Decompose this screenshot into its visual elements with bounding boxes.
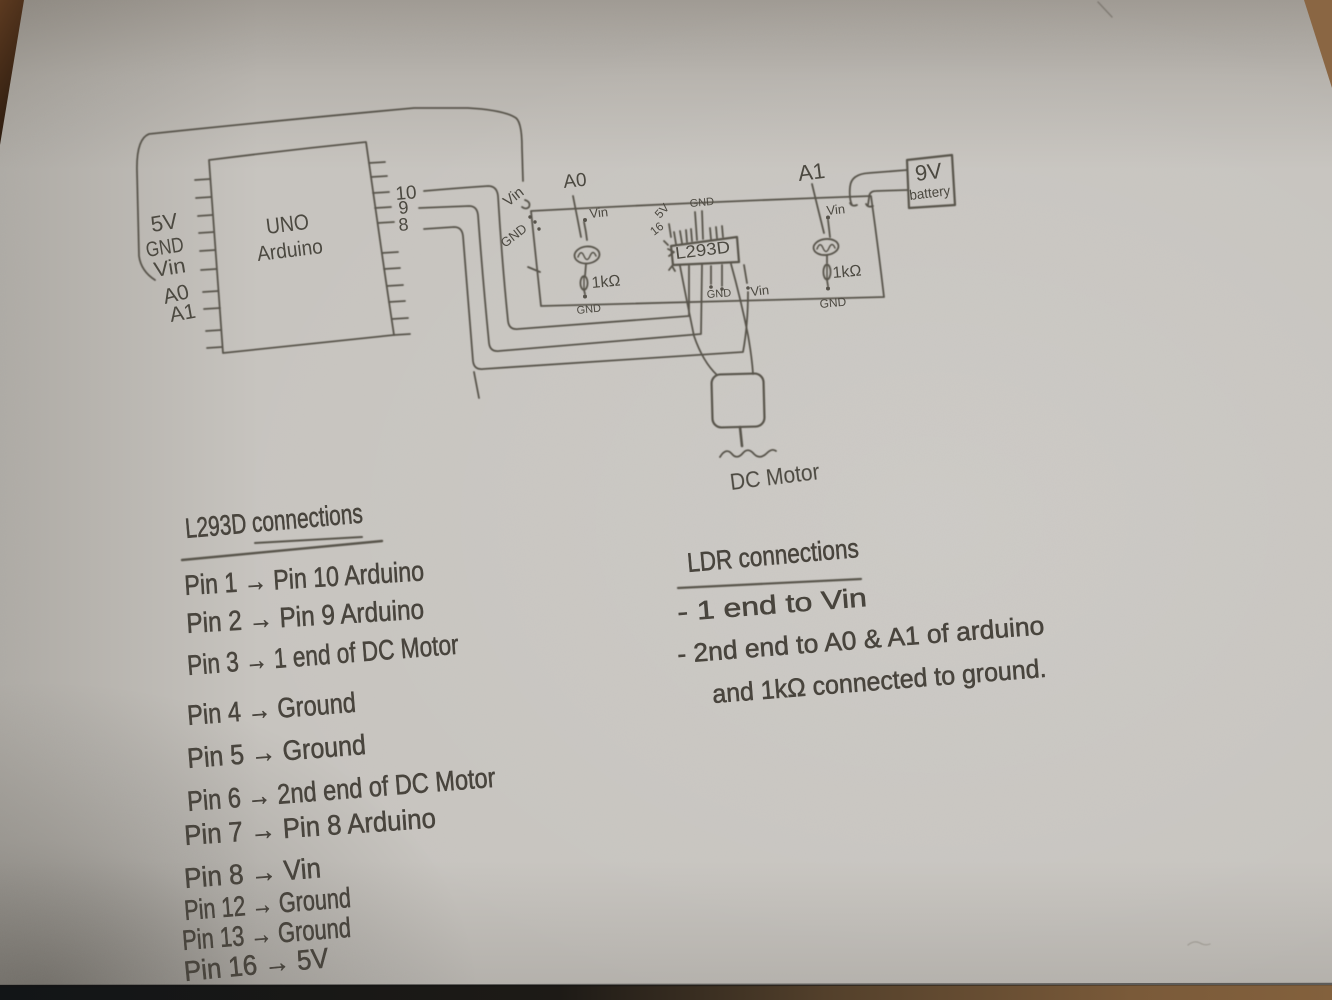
svg-text:GND: GND (689, 196, 714, 210)
svg-text:8: 8 (398, 214, 410, 235)
svg-text:GND: GND (819, 295, 847, 311)
svg-text:A0: A0 (562, 170, 587, 193)
svg-text:Vin: Vin (589, 204, 609, 221)
svg-text:Vin: Vin (750, 282, 770, 299)
svg-text:Vin: Vin (826, 201, 846, 218)
svg-text:UNO: UNO (265, 209, 311, 239)
svg-text:GND: GND (706, 287, 731, 301)
svg-text:5V: 5V (149, 208, 180, 237)
svg-text:A1: A1 (797, 158, 827, 186)
svg-text:A1: A1 (168, 300, 198, 327)
svg-text:1kΩ: 1kΩ (832, 263, 862, 282)
svg-text:1kΩ: 1kΩ (591, 273, 621, 292)
svg-text:GND: GND (576, 302, 602, 316)
svg-text:9V: 9V (914, 158, 944, 186)
